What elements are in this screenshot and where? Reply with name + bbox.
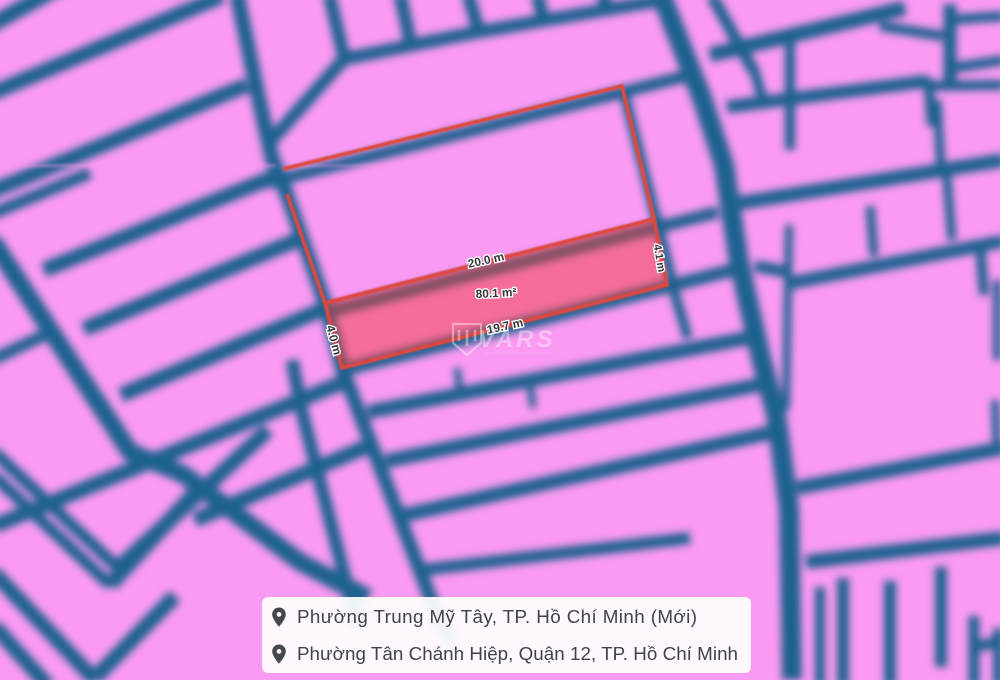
svg-text:VARS: VARS (479, 326, 556, 353)
svg-text:Phường Tân Chánh Hiệp, Quận 12: Phường Tân Chánh Hiệp, Quận 12, TP. Hồ C… (297, 643, 738, 664)
svg-text:80.1 m²: 80.1 m² (475, 285, 516, 301)
svg-text:VIETNAM ASSOCIATION OF REALTOR: VIETNAM ASSOCIATION OF REALTORS (483, 351, 551, 356)
svg-text:Phường Trung Mỹ Tây, TP. Hồ Ch: Phường Trung Mỹ Tây, TP. Hồ Chí Minh (Mớ… (297, 606, 697, 627)
